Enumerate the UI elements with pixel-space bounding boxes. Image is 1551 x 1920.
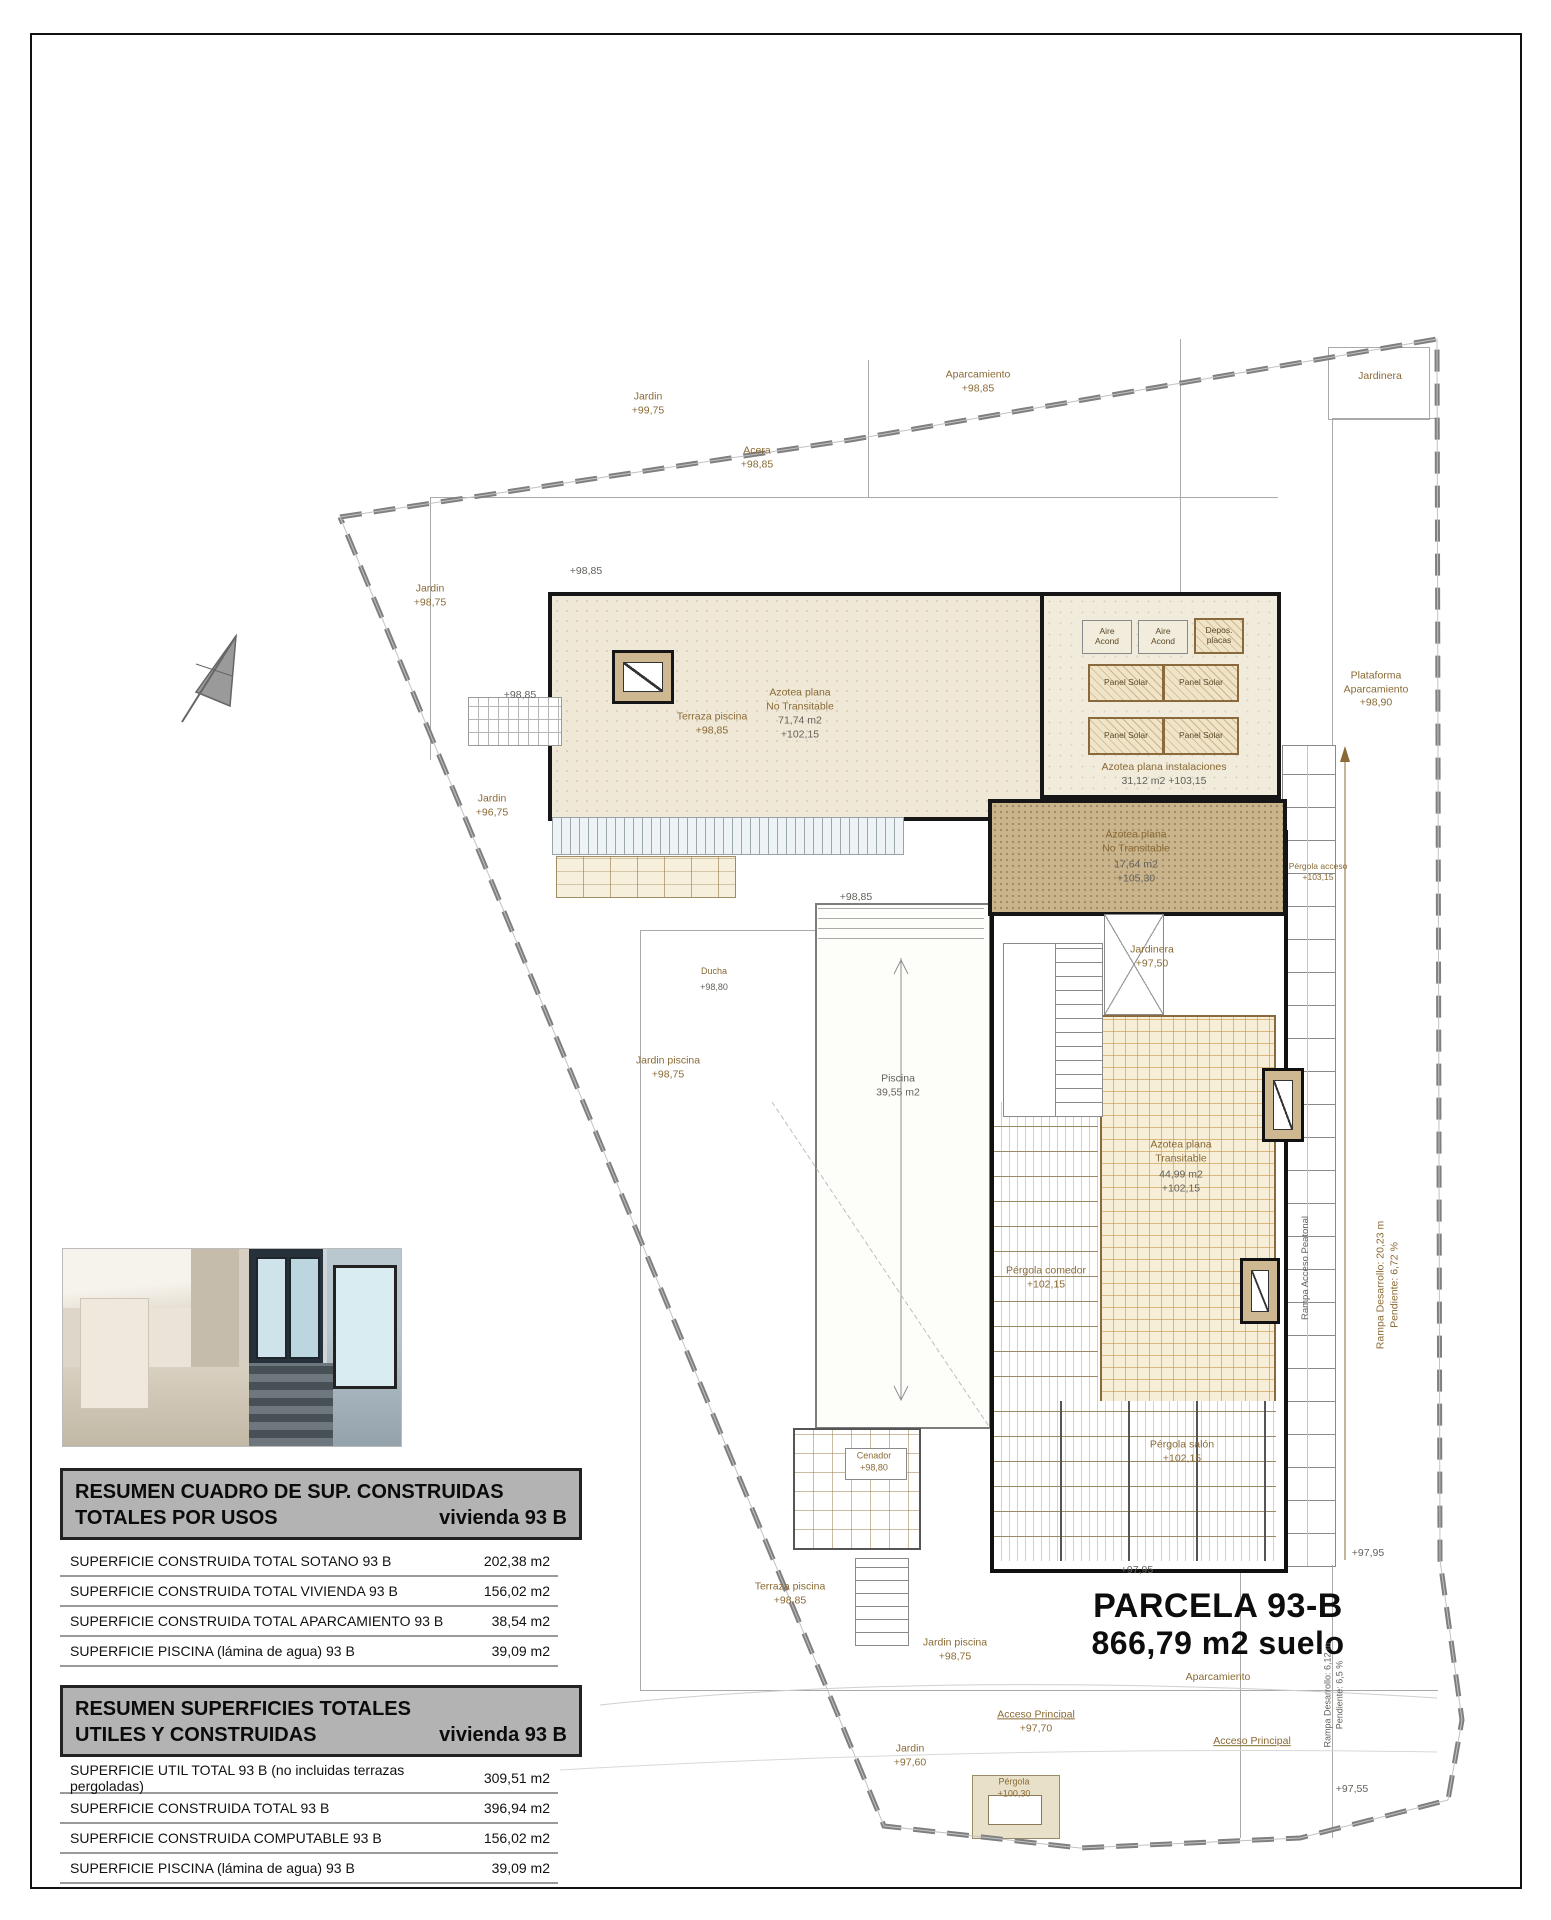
tiled-roof-terrace — [1100, 1015, 1276, 1405]
summary-table-1-rows: SUPERFICIE CONSTRUIDA TOTAL SOTANO 93 B2… — [60, 1547, 558, 1667]
plan-label: Azotea planaNo Transitable — [766, 686, 834, 713]
table-row: SUPERFICIE UTIL TOTAL 93 B (no incluidas… — [60, 1764, 558, 1794]
plan-label: Piscina39,55 m2 — [876, 1072, 920, 1099]
plan-label: Jardin piscina+98,75 — [636, 1054, 700, 1081]
row-label: SUPERFICIE CONSTRUIDA TOTAL SOTANO 93 B — [70, 1553, 391, 1569]
plan-label: Acera+98,85 — [741, 444, 773, 471]
plan-label: 44,99 m2+102,15 — [1159, 1168, 1203, 1195]
table-row: SUPERFICIE CONSTRUIDA TOTAL 93 B396,94 m… — [60, 1794, 558, 1824]
plan-label: Ducha — [701, 966, 727, 978]
pool — [815, 903, 991, 1429]
summary-table-1-title: RESUMEN CUADRO DE SUP. CONSTRUIDAS — [75, 1479, 567, 1505]
plan-label: PARCELA 93-B — [1093, 1584, 1343, 1628]
plan-label: Rampa Desarrollo: 6,12 mPendiente: 6,5 % — [1322, 1642, 1345, 1747]
plan-label: Acceso Principal — [1213, 1735, 1291, 1749]
platform-edge-line — [1332, 418, 1333, 745]
row-label: SUPERFICIE PISCINA (lámina de agua) 93 B — [70, 1643, 355, 1659]
pool-garden-edge — [640, 930, 641, 1690]
interior-render-photo — [62, 1248, 402, 1447]
access-band-line — [640, 1690, 1438, 1691]
plan-label: Terraza piscina+98,85 — [755, 1580, 826, 1607]
plan-label: Jardin+96,75 — [476, 792, 508, 819]
summary-table-1-unit: vivienda 93 B — [439, 1505, 567, 1531]
plan-label: +98,85 — [840, 891, 872, 905]
terrace-edge — [640, 930, 815, 931]
row-label: SUPERFICIE PISCINA (lámina de agua) 93 B — [70, 1860, 355, 1876]
window-pane — [1251, 1270, 1269, 1312]
plan-label: Jardin piscina+98,75 — [923, 1636, 987, 1663]
equipment-box: AireAcond — [1082, 620, 1132, 654]
plan-label: Azotea planaTransitable — [1150, 1138, 1211, 1165]
plan-label: Aparcamiento — [1186, 1671, 1251, 1685]
plan-label: +98,85 — [504, 689, 536, 703]
plan-label: 17,64 m2+105,30 — [1114, 858, 1158, 885]
equipment-box: Panel Solar — [1088, 717, 1164, 755]
plan-label: Aparcamiento+98,85 — [946, 368, 1011, 395]
table-row: SUPERFICIE CONSTRUIDA COMPUTABLE 93 B156… — [60, 1824, 558, 1854]
row-value: 39,09 m2 — [470, 1860, 550, 1876]
row-value: 156,02 m2 — [470, 1830, 550, 1846]
plan-label: Pérgola acceso+103,15 — [1289, 861, 1348, 883]
plan-label: Cenador+98,80 — [857, 1450, 892, 1473]
row-label: SUPERFICIE CONSTRUIDA TOTAL 93 B — [70, 1800, 329, 1816]
table-row: SUPERFICIE CONSTRUIDA TOTAL APARCAMIENTO… — [60, 1607, 558, 1637]
plan-label: +97,95 — [1352, 1547, 1384, 1561]
plan-label: Acceso Principal+97,70 — [997, 1708, 1075, 1735]
summary-table-1-header: RESUMEN CUADRO DE SUP. CONSTRUIDAS TOTAL… — [60, 1468, 582, 1540]
table-row: SUPERFICIE PISCINA (lámina de agua) 93 B… — [60, 1854, 558, 1884]
window-pane — [1273, 1080, 1293, 1130]
parking-edge-line — [868, 360, 869, 497]
stair-room — [1003, 943, 1057, 1117]
plan-label: PlataformaAparcamiento+98,90 — [1344, 670, 1409, 711]
plan-label: +98,85 — [570, 565, 602, 579]
plan-label: Azotea plana instalaciones — [1102, 761, 1227, 775]
plan-label: Azotea planaNo Transitable — [1102, 828, 1170, 855]
sidewalk-line — [430, 497, 1278, 498]
summary-table-2-unit: vivienda 93 B — [439, 1722, 567, 1748]
plan-label: Jardinera — [1358, 370, 1402, 384]
walkway-strip — [556, 856, 736, 898]
parking-edge-line — [1180, 339, 1181, 592]
gazebo-cenador — [793, 1428, 921, 1550]
row-value: 202,38 m2 — [470, 1553, 550, 1569]
plan-label: 71,74 m2+102,15 — [778, 714, 822, 741]
table-row: SUPERFICIE CONSTRUIDA TOTAL VIVIENDA 93 … — [60, 1577, 558, 1607]
equipment-box: Panel Solar — [1163, 717, 1239, 755]
row-label: SUPERFICIE UTIL TOTAL 93 B (no incluidas… — [70, 1762, 470, 1794]
summary-table-2-title: RESUMEN SUPERFICIES TOTALES — [75, 1696, 567, 1722]
summary-table-2-header: RESUMEN SUPERFICIES TOTALES UTILES Y CON… — [60, 1685, 582, 1757]
plan-label: 31,12 m2 +103,15 — [1122, 775, 1207, 789]
stair-treads — [1055, 943, 1103, 1117]
window-box — [1240, 1258, 1280, 1324]
south-stair — [855, 1558, 909, 1646]
row-value: 309,51 m2 — [470, 1770, 550, 1786]
plan-sheet: { "plan": { "labels": [ {"t":["Jardin","… — [0, 0, 1551, 1920]
plan-label: Jardin+97,60 — [894, 1742, 926, 1769]
skylight-pane — [623, 662, 663, 692]
pool-steps — [818, 906, 984, 948]
equipment-box: Panel Solar — [1088, 664, 1164, 702]
plan-label: Rampa Acceso Peatonal — [1300, 1216, 1312, 1320]
platform-top-line — [1332, 418, 1438, 419]
row-label: SUPERFICIE CONSTRUIDA TOTAL APARCAMIENTO… — [70, 1613, 443, 1629]
row-value: 156,02 m2 — [470, 1583, 550, 1599]
pergola-comedor-area — [994, 1102, 1098, 1401]
garden-edge-line — [430, 497, 431, 760]
plan-label: Jardin+99,75 — [632, 390, 664, 417]
row-value: 39,09 m2 — [470, 1643, 550, 1659]
plan-label: Rampa Desarrollo: 20,23 mPendiente: 6,72… — [1374, 1221, 1401, 1349]
pergola-salon-area — [994, 1401, 1276, 1561]
row-value: 396,94 m2 — [470, 1800, 550, 1816]
plan-label: Jardin+98,75 — [414, 582, 446, 609]
louver-strip — [552, 817, 904, 855]
side-steps-hatch — [468, 697, 562, 746]
row-label: SUPERFICIE CONSTRUIDA COMPUTABLE 93 B — [70, 1830, 382, 1846]
plan-label: Pérgola salón+102,15 — [1150, 1438, 1214, 1465]
window-box — [1262, 1068, 1304, 1142]
equipment-box: AireAcond — [1138, 620, 1188, 654]
row-value: 38,54 m2 — [470, 1613, 550, 1629]
plan-label: Pérgola comedor+102,15 — [1006, 1264, 1086, 1291]
skylight-box — [612, 650, 674, 704]
plan-label: Jardinera+97,50 — [1130, 943, 1174, 970]
plan-label: +97,55 — [1336, 1783, 1368, 1797]
table-row: SUPERFICIE CONSTRUIDA TOTAL SOTANO 93 B2… — [60, 1547, 558, 1577]
summary-table-1-subtitle: TOTALES POR USOS — [75, 1505, 278, 1531]
plan-label: 866,79 m2 suelo — [1092, 1623, 1345, 1665]
plan-label: Terraza piscina+98,85 — [677, 710, 748, 737]
equipment-box: Panel Solar — [1163, 664, 1239, 702]
plan-label: +98,80 — [700, 982, 728, 994]
plan-label: +97,95 — [1121, 1564, 1153, 1578]
summary-table-2-subtitle: UTILES Y CONSTRUIDAS — [75, 1722, 317, 1748]
summary-table-2-rows: SUPERFICIE UTIL TOTAL 93 B (no incluidas… — [60, 1764, 558, 1884]
plan-label: Pérgola+100,30 — [998, 1776, 1031, 1799]
row-label: SUPERFICIE CONSTRUIDA TOTAL VIVIENDA 93 … — [70, 1583, 398, 1599]
table-row: SUPERFICIE PISCINA (lámina de agua) 93 B… — [60, 1637, 558, 1667]
equipment-box: Depos.placas — [1194, 618, 1244, 654]
